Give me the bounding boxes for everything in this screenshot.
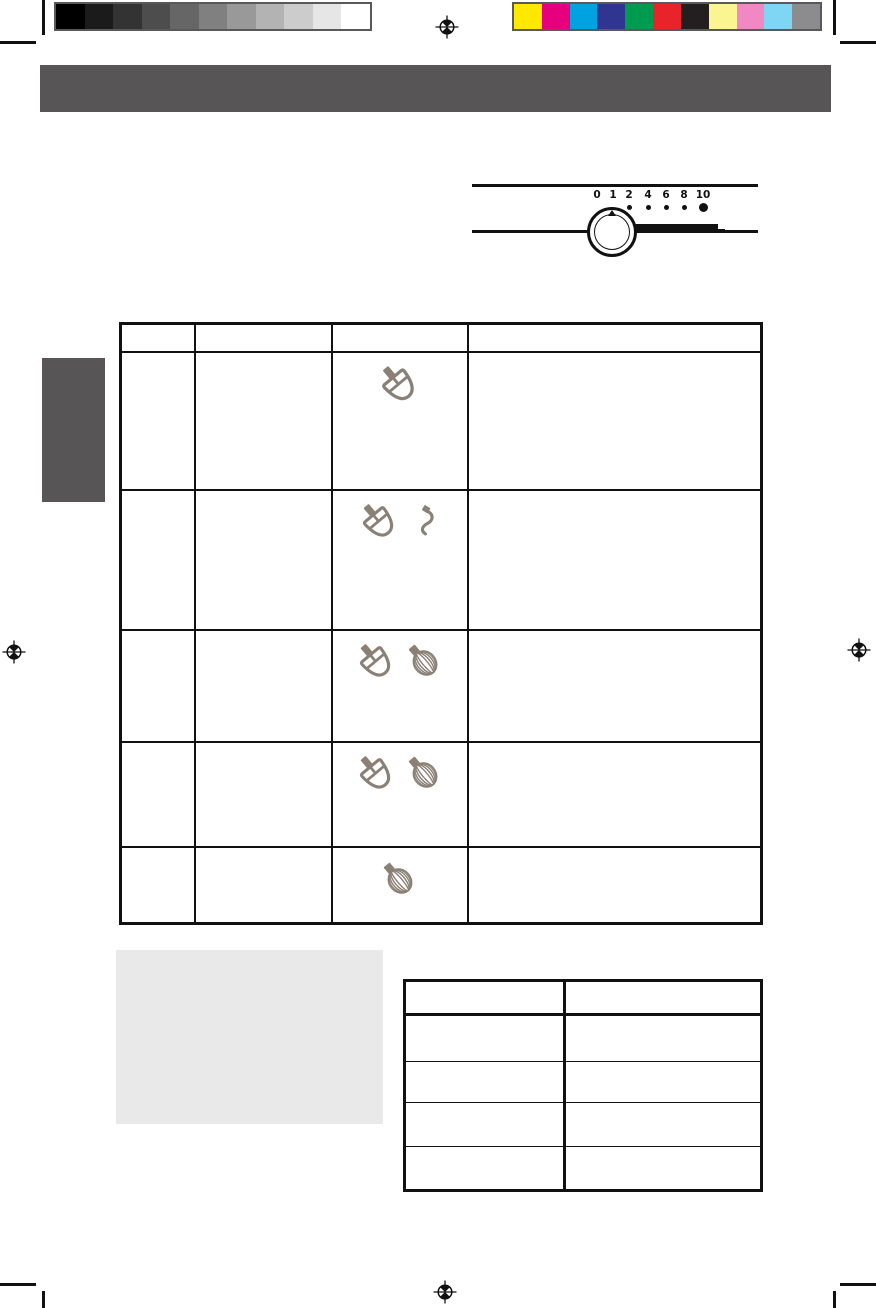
dial-knob-inner-ring [594, 214, 630, 250]
dough-hook-icon [407, 501, 443, 545]
table-row [406, 1016, 760, 1062]
flat-beater-icon [355, 641, 399, 685]
grayscale-swatch [113, 4, 142, 29]
page-edge-tab [42, 358, 105, 502]
dial-label-4: 4 [644, 189, 651, 201]
table-cell-action [196, 848, 331, 922]
section-header-bar [40, 65, 831, 112]
crop-mark-bottom-right-v [833, 1291, 836, 1308]
table-row [406, 1062, 760, 1104]
table-cell-description [469, 848, 760, 922]
table-cell-accessories [333, 848, 467, 922]
dial-dot-8 [682, 205, 687, 210]
crop-mark-bottom-left-h [0, 1283, 36, 1286]
table-cell-speed [122, 353, 194, 489]
whisk-icon [404, 641, 446, 685]
table-cell [566, 1147, 760, 1190]
grayscale-swatch [284, 4, 313, 29]
color-swatch [737, 4, 765, 29]
table-cell-accessories [333, 353, 467, 489]
color-swatch [570, 4, 598, 29]
dial-label-10: 10 [696, 189, 711, 201]
flat-beater-icon [358, 501, 402, 545]
table-header-cell [122, 325, 194, 351]
dial-speed-range-bar-step [718, 229, 725, 233]
table-cell-accessories [333, 631, 467, 741]
dial-label-2: 2 [625, 189, 632, 201]
crop-mark-top-right-v [833, 0, 836, 35]
registration-mark-icon [435, 15, 459, 39]
table-cell-description [469, 631, 760, 741]
dial-label-1: 1 [609, 189, 616, 201]
color-swatch [597, 4, 625, 29]
color-calibration-bar [512, 2, 822, 31]
crop-mark-top-right-h [840, 41, 876, 44]
registration-mark-icon [2, 640, 26, 664]
table-cell-description [469, 353, 760, 489]
grayscale-swatch [170, 4, 199, 29]
dial-dot-4 [646, 205, 651, 210]
dial-panel-line-top [472, 184, 758, 187]
flat-beater-icon [355, 753, 399, 797]
table-cell-action [196, 353, 331, 489]
grayscale-swatch [313, 4, 342, 29]
table-row [406, 1103, 760, 1147]
reference-table [403, 979, 763, 1192]
table-cell-action [196, 743, 331, 846]
table-cell-speed [122, 631, 194, 741]
registration-mark-icon [433, 1280, 457, 1304]
dial-label-0: 0 [593, 189, 600, 201]
table-header-cell [566, 982, 760, 1013]
table-cell [406, 1103, 566, 1146]
table-cell-action [196, 631, 331, 741]
table-header-cell [406, 982, 566, 1013]
dial-speed-range-bar [631, 224, 718, 233]
grayscale-swatch [142, 4, 171, 29]
table-cell [406, 1016, 566, 1061]
color-swatch [792, 4, 820, 29]
grayscale-swatch [56, 4, 85, 29]
table-cell [566, 1016, 760, 1061]
dial-dot-10 [699, 203, 708, 212]
crop-mark-bottom-right-h [840, 1283, 876, 1286]
flat-beater-icon [377, 363, 423, 409]
grayscale-swatch [256, 4, 285, 29]
color-swatch [709, 4, 737, 29]
color-swatch [514, 4, 542, 29]
table-header-cell [333, 325, 467, 351]
crop-mark-top-left-v [42, 0, 45, 35]
color-swatch [625, 4, 653, 29]
color-swatch [653, 4, 681, 29]
table-cell [566, 1103, 760, 1146]
dial-dot-6 [664, 205, 669, 210]
table-header-cell [196, 325, 331, 351]
table-cell-accessories [333, 491, 467, 629]
dial-label-8: 8 [680, 189, 687, 201]
grayscale-swatch [227, 4, 256, 29]
registration-mark-icon [847, 638, 871, 662]
dial-knob-pointer-icon [608, 210, 616, 216]
dial-dot-2 [627, 205, 632, 210]
scanned-page: 0 1 2 4 6 8 10 [0, 0, 876, 1308]
note-box [116, 950, 383, 1124]
table-cell-speed [122, 491, 194, 629]
dial-label-6: 6 [662, 189, 669, 201]
whisk-icon [404, 753, 446, 797]
table-row [406, 982, 760, 1016]
table-cell-action [196, 491, 331, 629]
table-cell [566, 1062, 760, 1103]
grayscale-swatch [199, 4, 228, 29]
table-cell-accessories [333, 743, 467, 846]
table-row [406, 1147, 760, 1190]
crop-mark-top-left-h [0, 41, 36, 44]
grayscale-swatch [85, 4, 114, 29]
table-cell-description [469, 743, 760, 846]
table-header-cell [469, 325, 760, 351]
grayscale-swatch [341, 4, 370, 29]
table-cell-speed [122, 848, 194, 922]
color-swatch [764, 4, 792, 29]
color-swatch [681, 4, 709, 29]
grayscale-calibration-bar [54, 2, 372, 31]
table-cell-description [469, 491, 760, 629]
whisk-icon [379, 858, 421, 904]
crop-mark-bottom-left-v [42, 1291, 45, 1308]
table-cell [406, 1062, 566, 1103]
table-cell-speed [122, 743, 194, 846]
table-cell [406, 1147, 566, 1190]
color-swatch [542, 4, 570, 29]
speed-guide-table [119, 322, 763, 925]
